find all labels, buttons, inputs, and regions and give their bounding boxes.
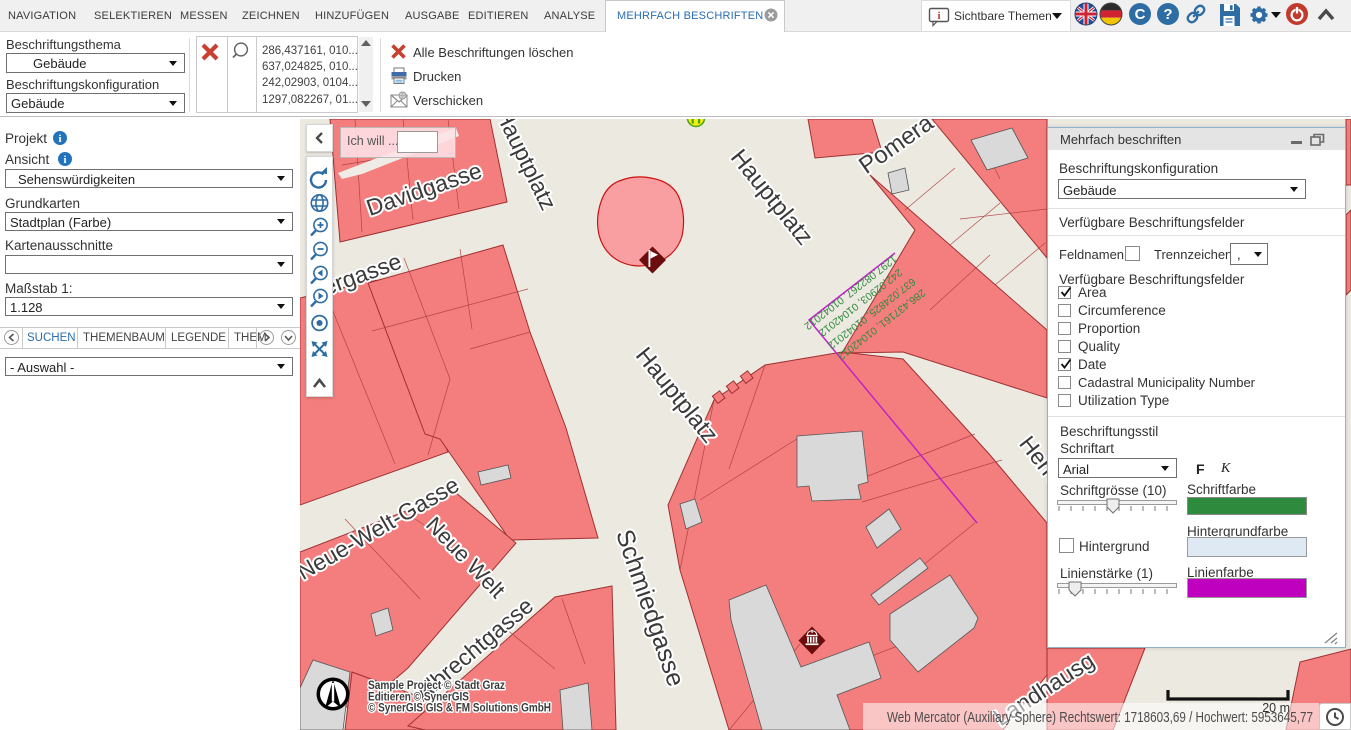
svg-text:Web Mercator (Auxiliary Sphere: Web Mercator (Auxiliary Sphere) Rechtswe… [887, 710, 1313, 726]
svg-text:Hauptplatz: Hauptplatz [725, 144, 818, 250]
svg-text:Hauptplatz: Hauptplatz [630, 342, 723, 448]
svg-text:© SynerGIS GIS & FM Solutions: © SynerGIS GIS & FM Solutions GmbH [368, 703, 551, 715]
svg-text:Sample Project © Stadt Graz: Sample Project © Stadt Graz [368, 680, 505, 692]
svg-text:C: C [1135, 6, 1146, 23]
svg-text:i: i [58, 133, 61, 145]
svg-text:i: i [937, 10, 940, 22]
svg-text:i: i [63, 154, 66, 166]
svg-text:?: ? [1163, 6, 1172, 23]
